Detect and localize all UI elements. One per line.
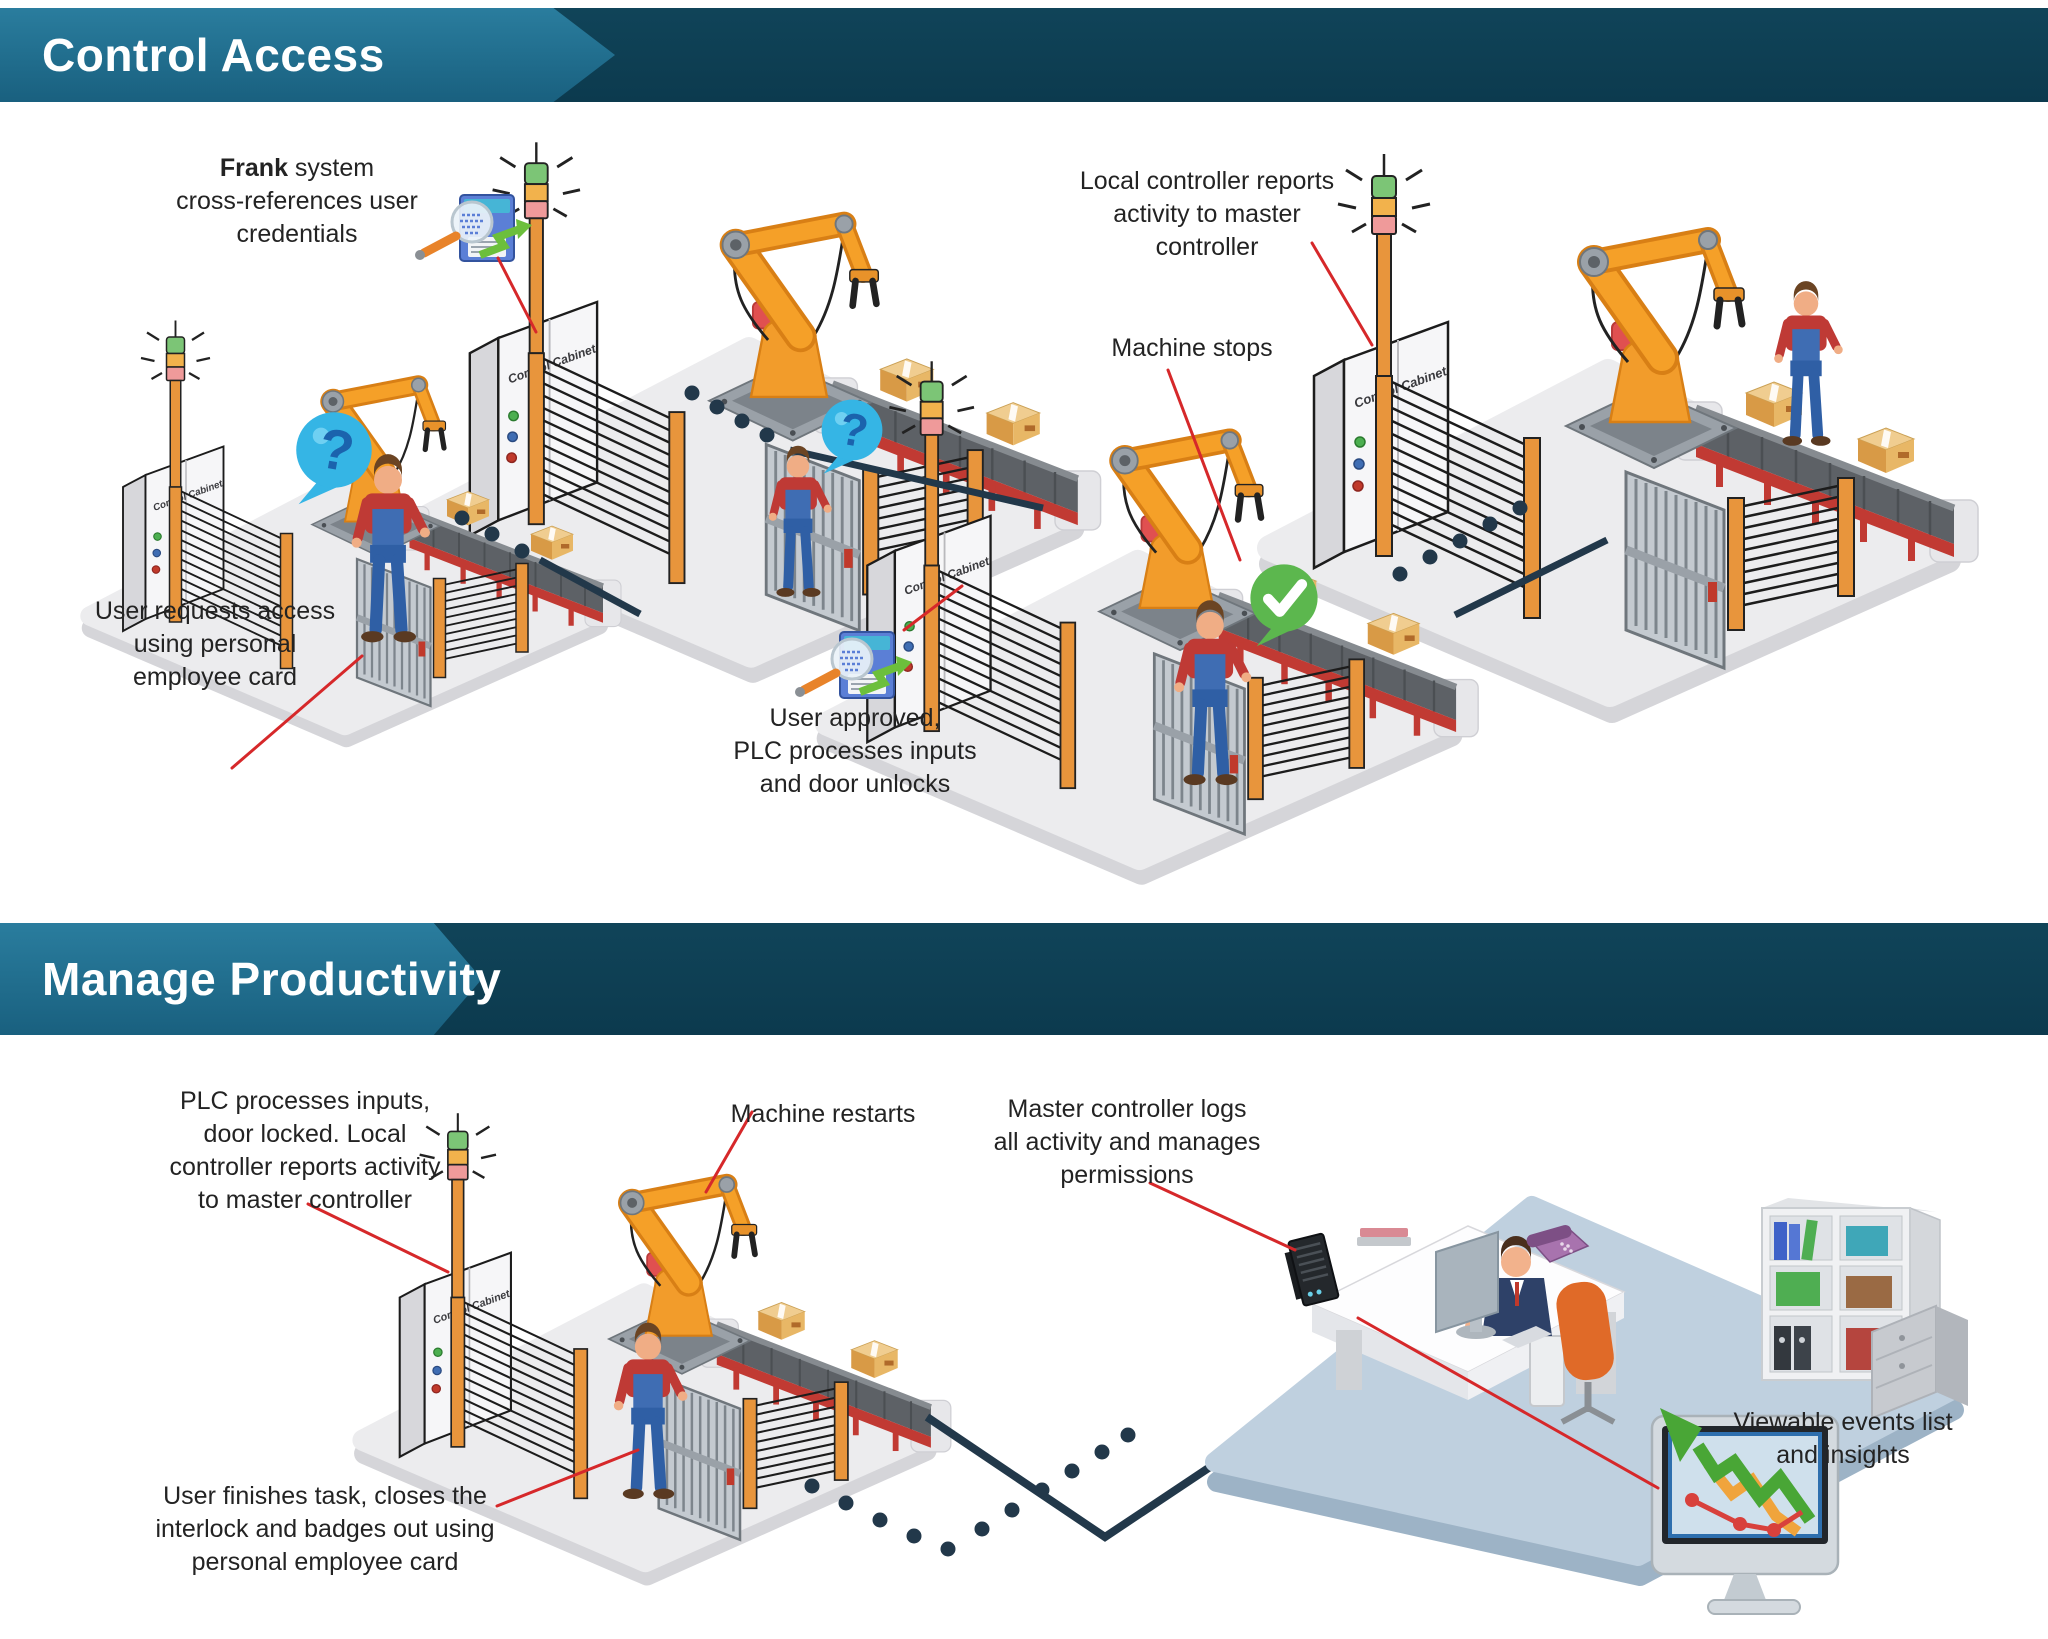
paper-tray xyxy=(1357,1228,1411,1246)
office-scene xyxy=(1215,1198,1968,1576)
annotation-user-finishes: User finishes task, closes the interlock… xyxy=(155,1480,494,1579)
credential-scan-icon-1 xyxy=(415,195,532,261)
master-controller-device xyxy=(1282,1233,1339,1307)
annotation-user-approved: User approved, PLC processes inputs and … xyxy=(733,702,976,801)
annotation-machine-stops: Machine stops xyxy=(1111,332,1272,365)
annotation-machine-restarts: Machine restarts xyxy=(731,1098,916,1131)
annotation-viewable-events: Viewable events list and insights xyxy=(1733,1406,1952,1472)
annotation-frank-system: Frank system cross-references user crede… xyxy=(176,152,418,251)
annotation-plc-processes: PLC processes inputs, door locked. Local… xyxy=(170,1085,441,1217)
annotation-user-requests: User requests access using personal empl… xyxy=(95,595,335,694)
banner-control-access: Control Access xyxy=(0,8,2048,102)
banner-manage-productivity: Manage Productivity xyxy=(0,923,2048,1035)
annotation-master-controller: Master controller logs all activity and … xyxy=(994,1093,1261,1192)
annotation-local-controller: Local controller reports activity to mas… xyxy=(1080,165,1334,264)
section-title-manage-productivity: Manage Productivity xyxy=(42,923,501,1035)
section-title-control-access: Control Access xyxy=(42,8,385,102)
infographic-canvas: ? xyxy=(0,0,2048,1639)
